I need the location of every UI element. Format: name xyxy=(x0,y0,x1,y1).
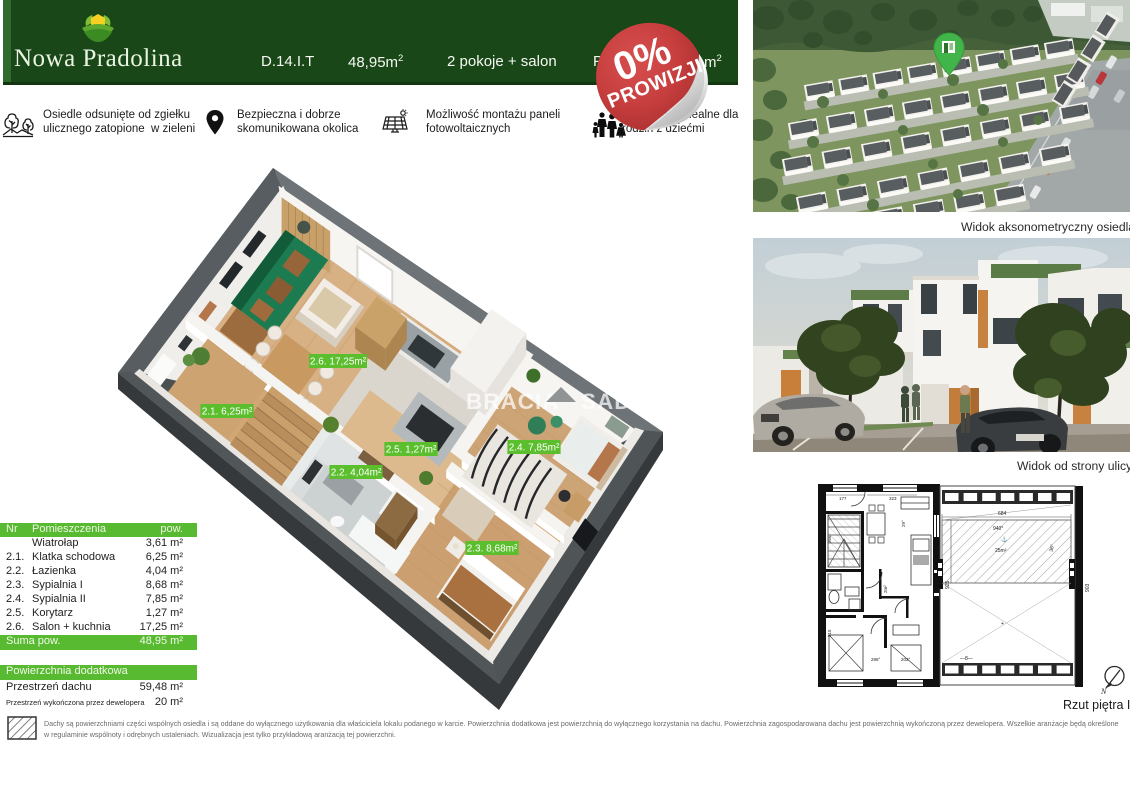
svg-text:940°: 940° xyxy=(993,526,1003,532)
svg-text:323: 323 xyxy=(889,496,897,501)
svg-text:+: + xyxy=(1001,621,1004,627)
svg-text:—8—: —8— xyxy=(960,656,973,662)
svg-text:BRACIA: BRACIA xyxy=(466,389,560,414)
svg-text:2m²: 2m² xyxy=(883,585,888,593)
svg-text:315: 315 xyxy=(827,629,832,637)
svg-text:366: 366 xyxy=(827,535,832,543)
svg-text:SADUR: SADUR xyxy=(581,389,666,414)
svg-text:925: 925 xyxy=(945,580,951,589)
svg-text:2.2. 4,04m²: 2.2. 4,04m² xyxy=(331,468,382,479)
svg-text:202°: 202° xyxy=(901,657,911,662)
svg-text:⚓: ⚓ xyxy=(1001,536,1007,543)
svg-text:2.6. 17,25m²: 2.6. 17,25m² xyxy=(310,357,367,368)
svg-text:298°: 298° xyxy=(871,657,881,662)
svg-text:2.1. 6,25m²: 2.1. 6,25m² xyxy=(202,407,253,418)
svg-text:25m²: 25m² xyxy=(995,548,1007,554)
svg-text:177: 177 xyxy=(839,496,847,501)
svg-text:684: 684 xyxy=(998,511,1007,517)
svg-text:29°: 29° xyxy=(901,520,906,527)
svg-text:N: N xyxy=(1100,687,1107,695)
svg-text:903: 903 xyxy=(1085,583,1091,592)
svg-text:2.3. 8,68m²: 2.3. 8,68m² xyxy=(467,544,518,555)
svg-text:2.5. 1,27m²: 2.5. 1,27m² xyxy=(386,445,437,456)
svg-text:2.4. 7,85m²: 2.4. 7,85m² xyxy=(509,443,560,454)
